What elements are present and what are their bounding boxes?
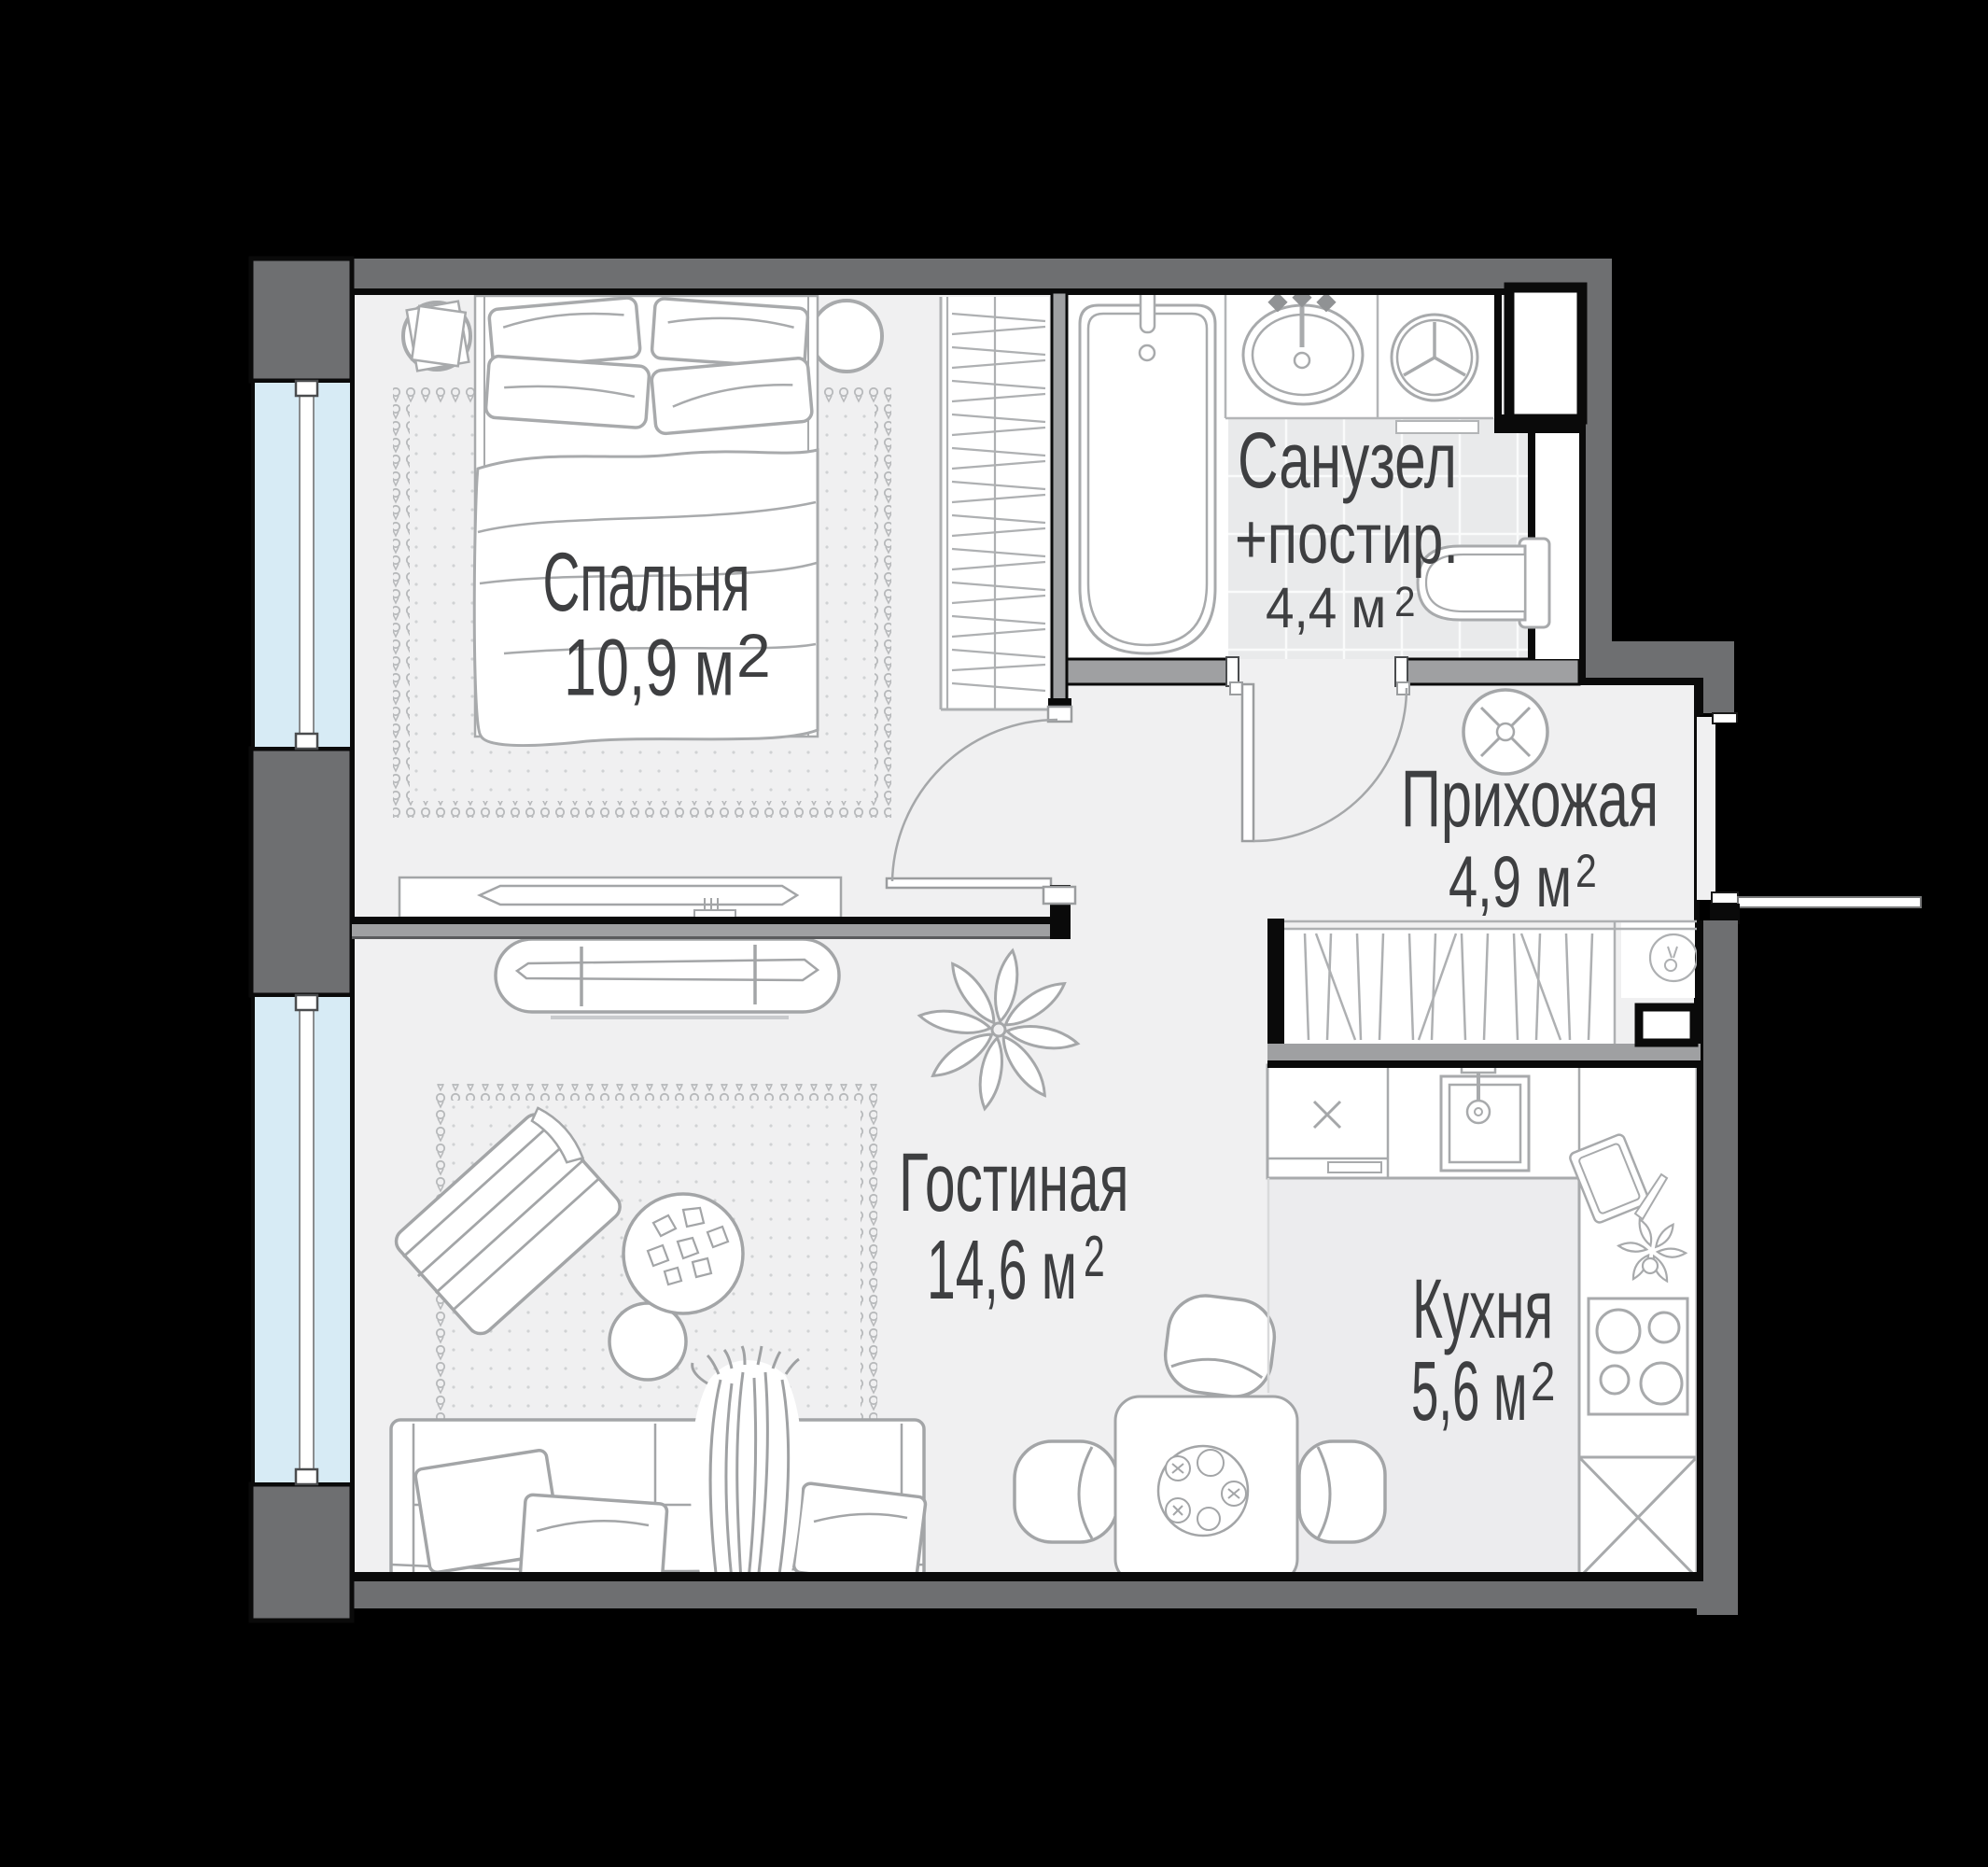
svg-text:4,9 м: 4,9 м [1449, 842, 1572, 922]
svg-text:4,4 м: 4,4 м [1266, 576, 1386, 639]
svg-text:Прихожая: Прихожая [1401, 753, 1659, 843]
svg-text:2: 2 [1531, 1353, 1555, 1413]
svg-text:Кухня: Кухня [1412, 1262, 1553, 1356]
svg-text:Спальня: Спальня [543, 536, 750, 629]
svg-text:2: 2 [1575, 845, 1597, 897]
svg-text:2: 2 [1394, 579, 1416, 625]
svg-text:+постир.: +постир. [1235, 499, 1459, 579]
svg-text:5,6 м: 5,6 м [1411, 1343, 1527, 1438]
svg-text:14,6 м: 14,6 м [927, 1222, 1077, 1316]
svg-text:2: 2 [1084, 1225, 1105, 1290]
svg-text:2: 2 [736, 621, 771, 690]
svg-text:10,9 м: 10,9 м [564, 623, 735, 712]
svg-text:Санузел: Санузел [1238, 417, 1457, 504]
svg-text:Гостиная: Гостиная [899, 1136, 1129, 1228]
